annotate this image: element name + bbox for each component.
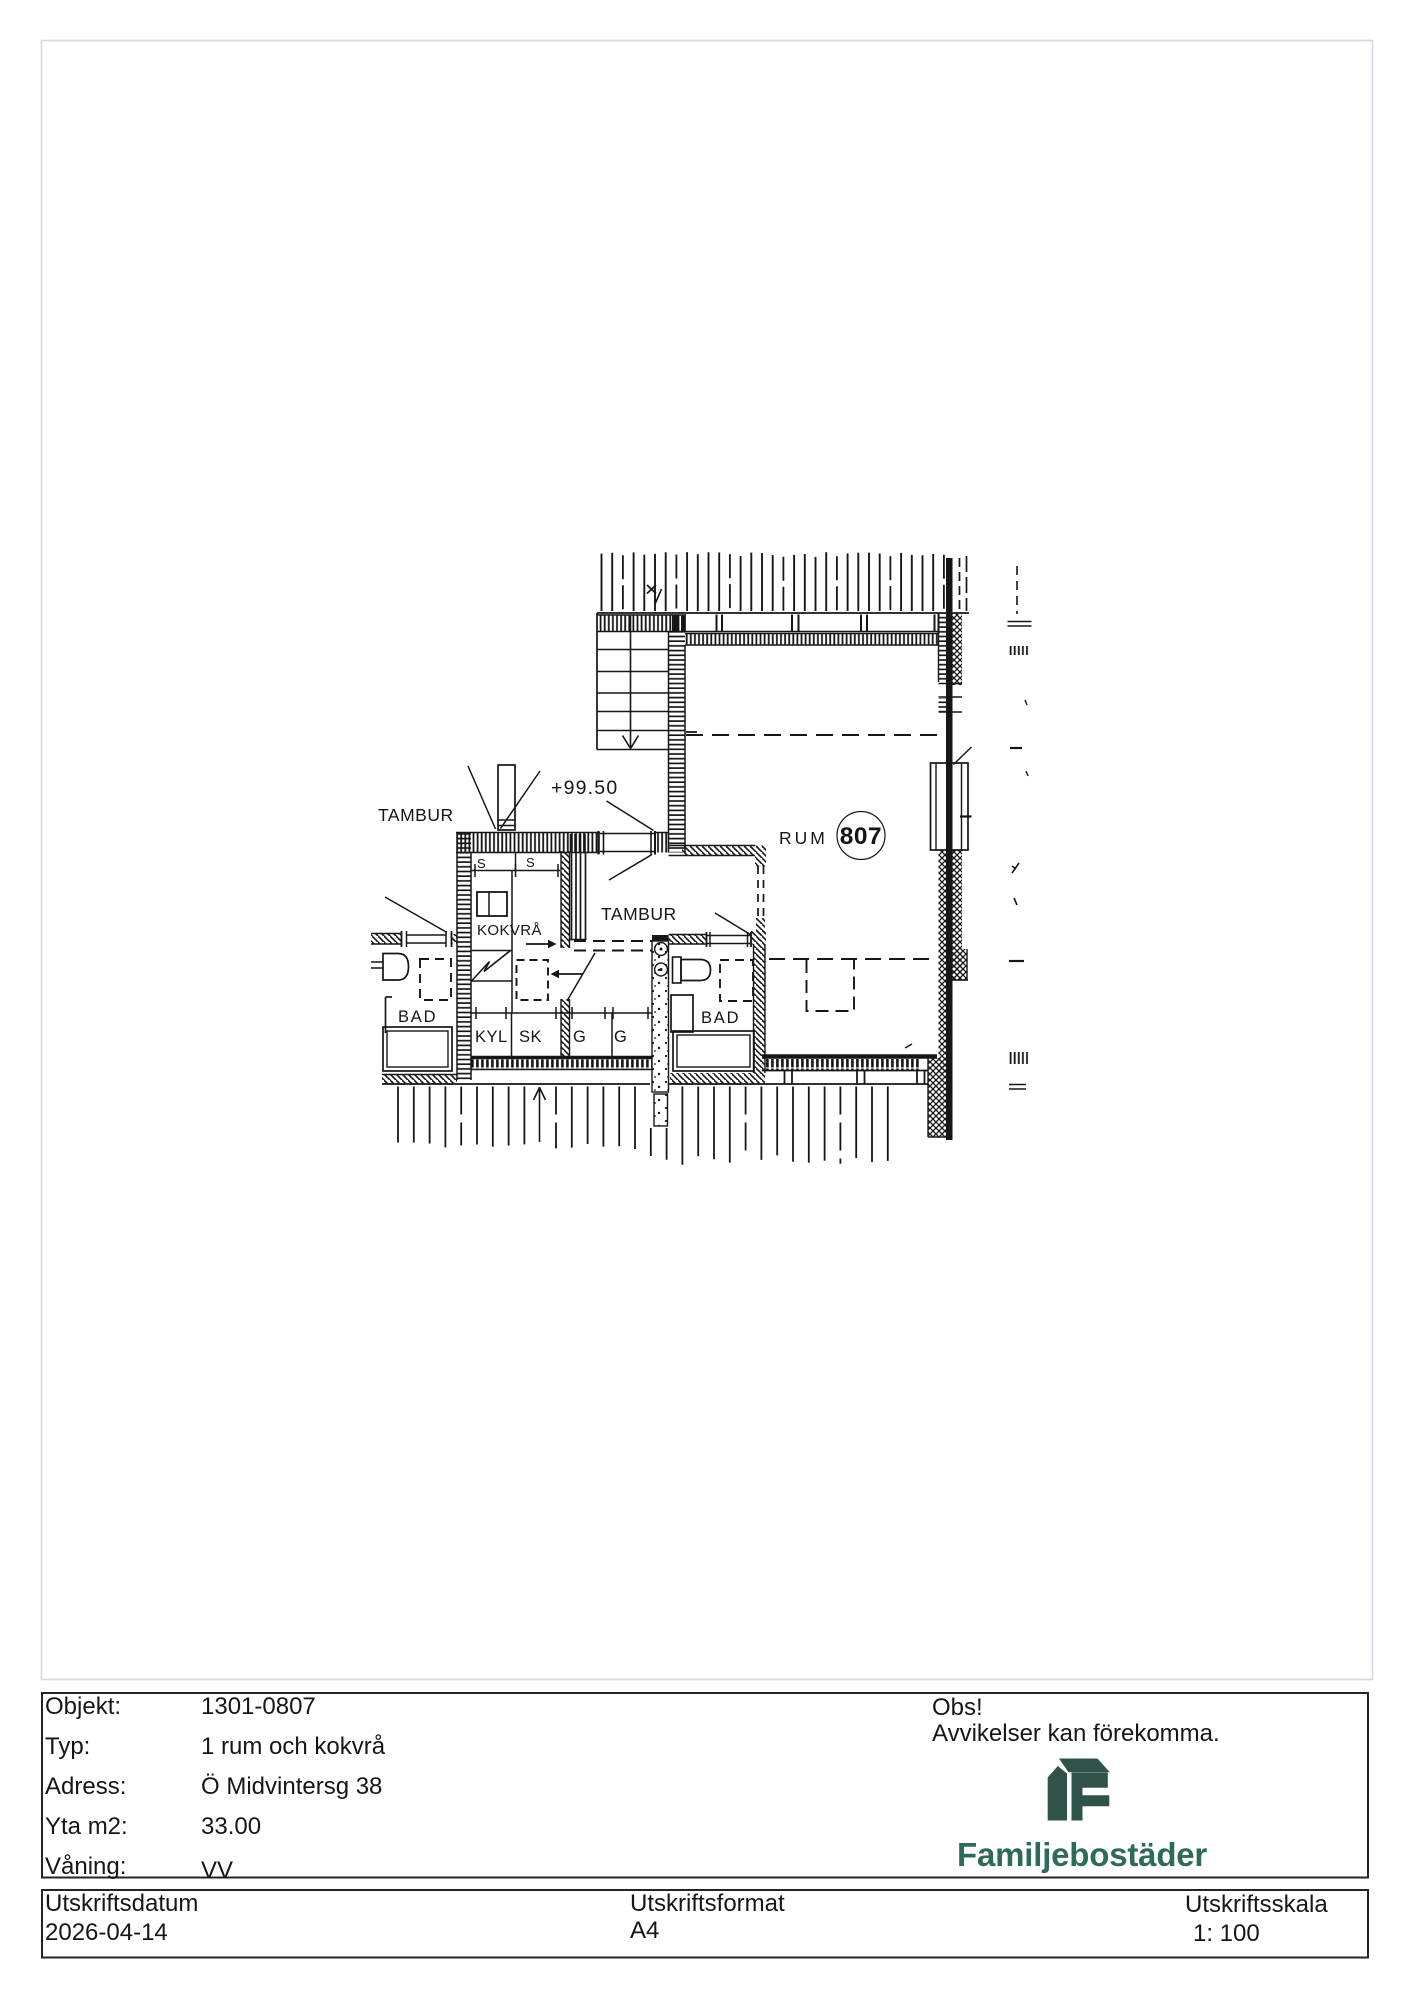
- svg-text:Utskriftsdatum: Utskriftsdatum: [45, 1890, 198, 1917]
- svg-text:BAD: BAD: [398, 1008, 437, 1026]
- svg-text:Familjebostäder: Familjebostäder: [957, 1836, 1207, 1873]
- svg-text:Yta m2:: Yta m2:: [45, 1813, 128, 1840]
- svg-text:Utskriftsskala: Utskriftsskala: [1185, 1891, 1328, 1918]
- svg-text:TAMBUR: TAMBUR: [378, 805, 454, 825]
- svg-text:RUM: RUM: [779, 828, 828, 848]
- svg-text:KOKVRÅ: KOKVRÅ: [477, 922, 542, 939]
- svg-text:TAMBUR: TAMBUR: [601, 904, 677, 924]
- svg-text:2026-04-14: 2026-04-14: [45, 1919, 168, 1946]
- svg-text:Obs!: Obs!: [932, 1694, 983, 1721]
- svg-text:807: 807: [840, 823, 882, 850]
- svg-text:1301-0807: 1301-0807: [201, 1693, 316, 1720]
- svg-text:SK: SK: [519, 1028, 542, 1046]
- svg-text:S: S: [477, 856, 486, 871]
- svg-text:1: 100: 1: 100: [1193, 1920, 1260, 1947]
- svg-text:33.00: 33.00: [201, 1813, 261, 1840]
- svg-text:Avvikelser kan förekomma.: Avvikelser kan förekomma.: [932, 1720, 1220, 1747]
- svg-text:Adress:: Adress:: [45, 1773, 126, 1800]
- svg-text:BAD: BAD: [701, 1009, 740, 1027]
- svg-text:1 rum och kokvrå: 1 rum och kokvrå: [201, 1733, 386, 1760]
- svg-text:KYL: KYL: [475, 1028, 508, 1046]
- svg-text:G: G: [614, 1028, 627, 1046]
- svg-text:Våning:: Våning:: [45, 1853, 126, 1880]
- svg-text:VV: VV: [201, 1857, 233, 1884]
- svg-text:Ö Midvintersg 38: Ö Midvintersg 38: [201, 1773, 382, 1800]
- svg-text:A4: A4: [630, 1917, 659, 1944]
- svg-text:S: S: [526, 855, 535, 870]
- svg-text:Typ:: Typ:: [45, 1733, 90, 1760]
- svg-text:Utskriftsformat: Utskriftsformat: [630, 1890, 785, 1917]
- svg-text:+99.50: +99.50: [551, 777, 618, 799]
- svg-text:G: G: [573, 1028, 586, 1046]
- svg-text:Objekt:: Objekt:: [45, 1693, 121, 1720]
